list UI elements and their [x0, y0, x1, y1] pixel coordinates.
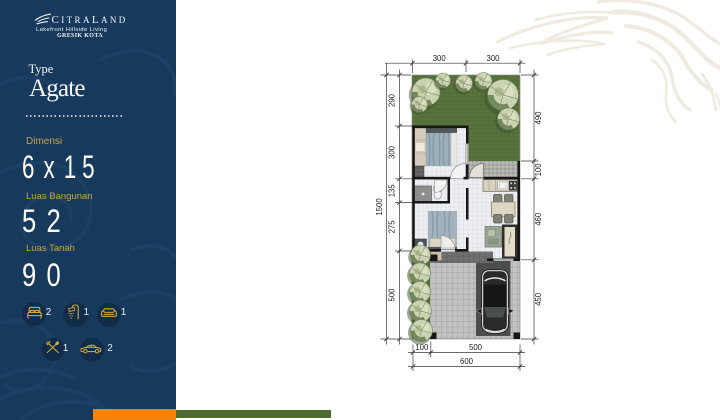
- svg-text:600: 600: [460, 357, 474, 366]
- svg-text:300: 300: [388, 145, 397, 159]
- svg-text:1500: 1500: [375, 198, 384, 216]
- svg-text:490: 490: [534, 111, 543, 125]
- svg-text:500: 500: [469, 343, 483, 352]
- svg-text:300: 300: [486, 54, 500, 63]
- svg-text:300: 300: [433, 54, 447, 63]
- svg-text:290: 290: [388, 93, 397, 107]
- svg-text:500: 500: [388, 288, 397, 302]
- svg-text:135: 135: [388, 184, 397, 198]
- svg-text:460: 460: [534, 212, 543, 226]
- svg-text:275: 275: [388, 220, 397, 234]
- svg-text:100: 100: [415, 343, 429, 352]
- svg-text:450: 450: [534, 292, 543, 306]
- svg-text:100: 100: [534, 163, 543, 177]
